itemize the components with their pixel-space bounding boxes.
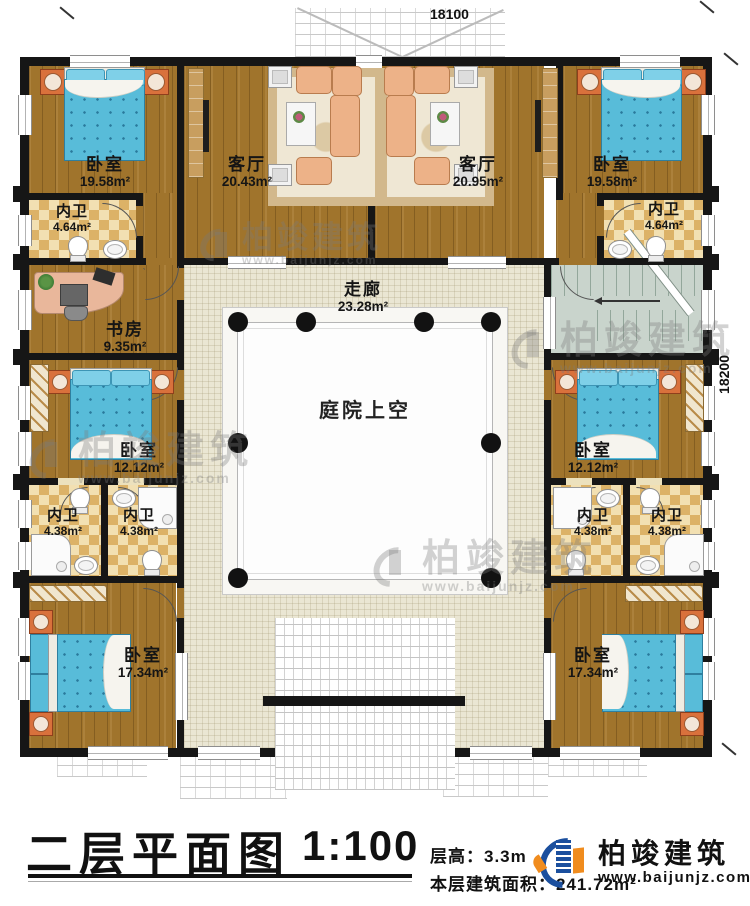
pilaster [712,254,719,270]
sofa [386,95,416,157]
sink [596,489,620,508]
headboard-panel [683,634,703,674]
window [701,215,715,246]
pilaster [13,186,20,202]
door-gap [146,258,177,265]
window [18,215,32,246]
coffee-table [286,102,316,146]
desk-chair [64,306,88,321]
axis-tick [699,0,714,13]
dimension-top: 18100 [430,6,469,22]
nightstand [680,712,704,736]
pillow [111,370,150,386]
logo-building-blue [556,840,571,873]
steps-bottom-right [548,757,647,777]
toilet [646,236,666,258]
room-label-courtyard: 庭院上空 [300,394,430,423]
watermark: 柏竣建筑 www.baijunjz.com [30,432,254,487]
pilaster [712,572,719,588]
column [228,568,248,588]
room-label-bath-ml-a: 内卫 4.38m² [30,508,96,538]
nightstand [680,69,706,95]
door-gap [559,258,597,265]
nightstand [150,370,174,394]
wall-tl-living [177,65,184,200]
terrace-bottom-right [443,757,548,797]
porch-beam [263,696,465,706]
shower [664,534,704,576]
window [470,746,532,760]
brand-text-group: 柏竣建筑 www.baijunjz.com [598,839,750,888]
nightstand [680,610,704,634]
sofa-corner [332,66,362,96]
brand-logo-icon [540,836,590,890]
floor-height-text: 层高：3.3m [430,842,527,867]
roof-top-porch [295,8,505,57]
window [701,500,715,528]
brand-website: www.baijunjz.com [598,869,750,887]
window [701,432,715,466]
room-label-bath-tr: 内卫 4.64m² [628,202,700,232]
toilet [142,550,162,572]
window [18,542,32,570]
room-label-bedroom-tl: 卧室 19.58m² [59,155,151,189]
tv [535,100,541,152]
headboard-panel [683,674,703,712]
sofa [296,66,332,94]
watermark: 柏竣建筑 www.baijunjz.com [374,540,598,595]
room-label-bath-mr-b: 内卫 4.38m² [634,508,700,538]
plan-scale: 1:100 [302,822,419,870]
pilaster [712,474,719,490]
window [88,746,168,760]
armchair [296,157,332,185]
room-label-living-left: 客厅 20.43m² [201,155,293,189]
column [481,312,501,332]
pilaster [13,572,20,588]
bed-tr [577,66,704,162]
pilaster [13,349,20,365]
brand-name: 柏竣建筑 [598,839,750,870]
nightstand [143,69,169,95]
desk-plant [38,274,54,290]
floor-plan-page: 卧室 19.58m² 客厅 20.43m² 客厅 20.95m² 卧室 19.5… [0,0,750,906]
headboard-panel [30,634,50,674]
wall-bath-tr-top [597,193,704,200]
room-label-bedroom-bl: 卧室 17.34m² [98,646,188,680]
stairs-arrow-head [594,297,602,305]
door-gap [136,206,143,236]
sofa [414,66,450,94]
door-gap [177,370,184,400]
brand-logo: 柏竣建筑 www.baijunjz.com [540,836,750,890]
title-underline-thin [28,881,412,882]
pillow [72,370,111,386]
sofa [330,95,360,157]
computer-monitor [60,284,88,306]
axis-tick [721,742,736,755]
toilet [68,236,88,258]
sink [74,556,98,575]
watermark-logo-icon [374,543,414,591]
room-label-study: 书房 9.35m² [86,320,164,354]
column [296,312,316,332]
window [18,95,32,135]
coffee-table [430,102,460,146]
room-label-living-right: 客厅 20.95m² [432,155,524,189]
sink [103,240,127,259]
wardrobe [625,585,703,602]
wall-bath-tl-top [20,193,143,200]
sliding-door [448,256,506,269]
logo-building-orange [573,847,584,873]
door-gap [566,478,592,485]
column [228,312,248,332]
sofa-corner [384,66,414,96]
pilaster [712,186,719,202]
window [560,746,640,760]
door-gap [636,478,662,485]
nightstand [29,712,53,736]
watermark-logo-icon [200,225,234,265]
nightstand [48,370,72,394]
window [198,746,260,760]
watermark-logo-icon [512,325,552,373]
door-gap [177,588,184,618]
room-label-bedroom-tr: 卧室 19.58m² [566,155,658,189]
window [18,290,32,330]
room-label-bedroom-br: 卧室 17.34m² [548,646,638,680]
column [414,312,434,332]
axis-tick [723,52,738,65]
tv-cabinet [542,68,558,178]
bed-tl [40,66,167,162]
sink [636,556,660,575]
terrace-bottom-left [180,757,287,799]
stairs-direction-arrow [600,300,660,302]
shower [31,534,71,576]
headboard-panel [30,674,50,712]
tv [203,100,209,152]
sink [112,489,136,508]
wardrobe [29,585,107,602]
room-label-bath-ml-b: 内卫 4.38m² [106,508,172,538]
column [481,433,501,453]
nightstand [577,69,603,95]
steps-bottom-left [57,757,147,777]
sink [608,240,632,259]
wardrobe [30,364,49,432]
door-arc [143,268,145,270]
wall-bath-ml-bottom [20,576,177,583]
nightstand [29,610,53,634]
pilaster [13,474,20,490]
room-label-bath-tl: 内卫 4.64m² [36,204,108,234]
pilaster [13,254,20,270]
door-gap [597,206,604,236]
watermark: 柏竣建筑 www.baijunjz.com [512,322,736,377]
watermark: 柏竣建筑 www.baijunjz.com [200,222,382,267]
room-label-corridor: 走廊 23.28m² [318,280,408,314]
nightstand [40,69,66,95]
side-table [454,66,478,88]
title-underline [28,874,412,878]
axis-tick [59,6,74,19]
watermark-logo-icon [30,435,70,483]
room-label-bedroom-mr: 卧室 12.12m² [549,441,637,475]
side-table [268,66,292,88]
room-label-bath-mr-a: 内卫 4.38m² [560,508,626,538]
